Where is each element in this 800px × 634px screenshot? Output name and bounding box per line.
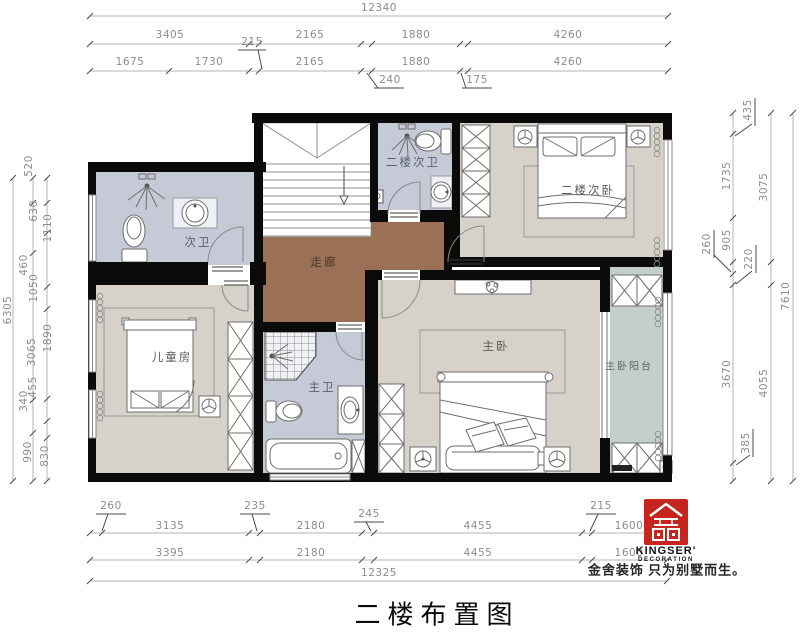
room-label-erlou-ciwei: 二楼次卫 <box>386 154 440 170</box>
room-label-zhuwo: 主卧 <box>483 338 510 354</box>
dim-label: 340 <box>18 390 30 412</box>
dim-label: 4260 <box>554 29 583 41</box>
dim-label: 4455 <box>464 547 493 559</box>
dim-label: 1890 <box>42 324 54 353</box>
dim-label: 1600 <box>615 520 644 532</box>
dim-leader-175: 175 <box>466 74 488 86</box>
dim-leader: 260 <box>701 233 713 255</box>
dim-leader: 385 <box>740 432 752 454</box>
dim-label: 4455 <box>464 520 493 532</box>
dim-leader: 220 <box>743 248 755 270</box>
dim-label: 2180 <box>297 547 326 559</box>
dim-label: 1730 <box>195 56 224 68</box>
dim-label: 1880 <box>402 29 431 41</box>
dim-leader-215: 215 <box>241 36 263 48</box>
dim-bottom-total: 12325 <box>361 567 397 579</box>
toilet-icon <box>266 401 276 422</box>
dim-leader: 245 <box>358 508 380 520</box>
dim-leader: 435 <box>742 99 754 121</box>
brand-tagline: 金舍装饰 只为别墅而生。 <box>588 560 746 579</box>
bed-icon <box>127 330 193 412</box>
dim-label: 1735 <box>721 162 733 191</box>
dim-label: 2165 <box>296 29 325 41</box>
dim-leader: 235 <box>244 500 266 512</box>
dim-label: 2180 <box>297 520 326 532</box>
page-title: 二楼布置图 <box>354 595 519 632</box>
dim-label: 630 <box>28 200 40 222</box>
bedroom-second <box>462 124 650 218</box>
room-label-zhuwei: 主卫 <box>309 379 336 395</box>
dim-label: 3135 <box>156 520 185 532</box>
dim-label: 4055 <box>758 369 770 398</box>
dim-leader: 215 <box>590 500 612 512</box>
dim-left-total: 6305 <box>2 296 14 325</box>
dim-label: 460 <box>18 254 30 276</box>
room-label-zoulang: 走廊 <box>311 254 338 270</box>
room-label-erlou-ciwo: 二楼次卧 <box>561 182 615 198</box>
dim-label: 990 <box>22 441 34 463</box>
toilet-icon <box>122 249 147 262</box>
dim-label: 1050 <box>28 274 40 303</box>
dim-top-total: 12340 <box>361 2 397 14</box>
dim-leader-240: 240 <box>379 74 401 86</box>
floorplan-page: 12340 3405 215 2165 1880 4260 1675 1730 … <box>0 0 800 634</box>
kingser-logo-icon <box>644 499 688 545</box>
dim-label: 2165 <box>296 56 325 68</box>
toilet-icon <box>441 129 451 154</box>
dim-label: 520 <box>23 155 35 177</box>
dim-label: 3405 <box>156 29 185 41</box>
dim-label: 4260 <box>554 56 583 68</box>
dim-label: 1675 <box>116 56 145 68</box>
dim-label: 1110 <box>42 214 54 243</box>
dim-label: 3395 <box>156 547 185 559</box>
room-label-ciwei: 次卫 <box>185 234 212 250</box>
dim-label: 1880 <box>402 56 431 68</box>
dim-label: 3075 <box>758 173 770 202</box>
room-label-zhuwo-yangtai: 主卧阳台 <box>605 358 653 373</box>
dim-right-total: 7610 <box>780 282 792 311</box>
bathtub-icon <box>266 439 351 473</box>
dim-label: 3065 <box>26 338 38 367</box>
dim-label: 3670 <box>721 360 733 389</box>
brand-name: KINGSER' <box>636 545 697 557</box>
room-label-ertongfang: 儿童房 <box>152 349 193 365</box>
dim-label: 830 <box>39 445 51 467</box>
bench <box>446 446 540 470</box>
dim-leader: 260 <box>100 500 122 512</box>
dim-label: 905 <box>721 229 733 251</box>
